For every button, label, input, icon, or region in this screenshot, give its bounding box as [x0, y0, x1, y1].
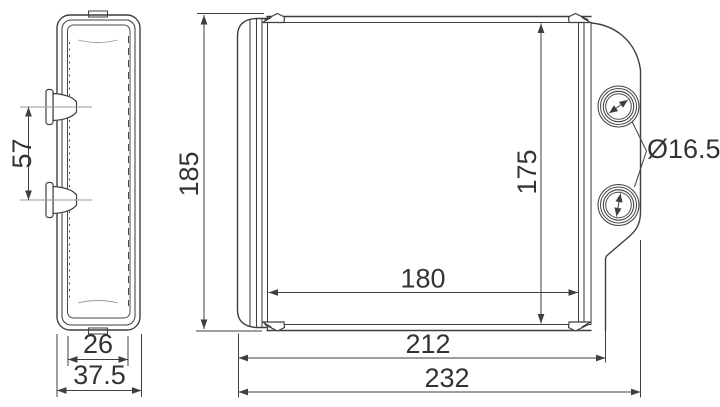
- dimension-pipe-spacing: 57: [7, 107, 37, 200]
- side-inner-shell: [62, 20, 135, 325]
- left-tank: [238, 19, 268, 328]
- dimension-core-height: 175: [512, 24, 544, 324]
- outlet-port-bottom: [598, 185, 639, 226]
- overall-height-label: 185: [174, 151, 204, 196]
- port-diameter-arrows-bottom: [613, 191, 625, 220]
- core-height-label: 175: [512, 149, 542, 194]
- bottom-surface-arc: [78, 301, 118, 304]
- pipe-fitting-upper: [20, 90, 92, 125]
- pipe-fitting-lower: [20, 183, 92, 218]
- pipe-spacing-label: 57: [7, 138, 37, 168]
- core-width-label: 180: [400, 264, 445, 294]
- top-mount-tab: [89, 11, 108, 17]
- corner-clip-bottom-right: [569, 322, 591, 331]
- front-view: 185: [174, 14, 720, 398]
- corner-clip-bottom-left: [263, 322, 285, 331]
- dimension-core-width: 180: [269, 264, 579, 296]
- side-inner-face: [68, 25, 131, 318]
- heater-core-engineering-drawing: 57 26 37.5 185: [0, 0, 720, 407]
- dimension-port-diameter: Ø16.5: [632, 122, 720, 188]
- port-diameter-label: Ø16.5: [647, 134, 720, 164]
- leader-to-top-port: [632, 122, 647, 152]
- left-tank-outline: [238, 19, 268, 328]
- dimension-body-width: 212: [239, 329, 606, 398]
- inner-depth-label: 26: [83, 329, 113, 359]
- overall-depth-label: 37.5: [73, 360, 126, 390]
- technical-drawing-page: 57 26 37.5 185: [0, 0, 720, 407]
- body-width-label: 212: [405, 329, 450, 359]
- inlet-port-top: [598, 86, 639, 127]
- right-tank-outline: [592, 23, 641, 331]
- side-view: 57 26 37.5: [7, 11, 142, 397]
- port-diameter-arrows-top: [605, 96, 632, 118]
- overall-width-label: 232: [424, 363, 469, 393]
- corner-clip-top-right: [569, 14, 591, 23]
- top-surface-arc: [78, 40, 118, 43]
- dimension-overall-height: 185: [174, 15, 207, 329]
